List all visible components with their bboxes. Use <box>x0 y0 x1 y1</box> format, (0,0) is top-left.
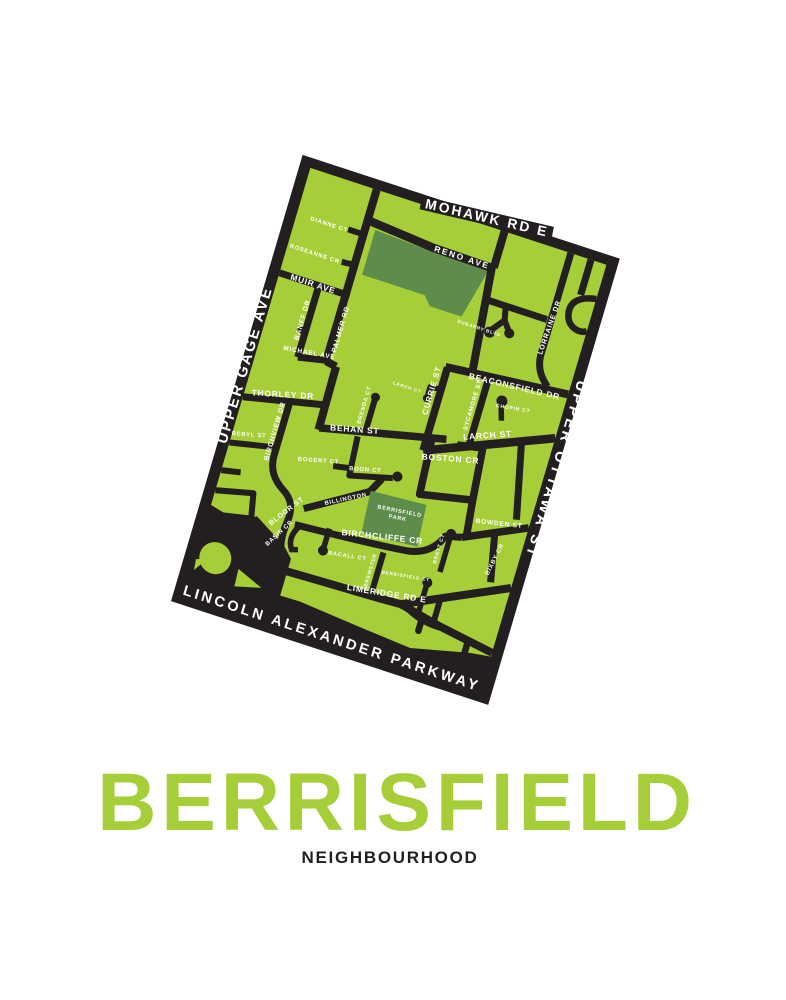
svg-text:BERRISFIELD: BERRISFIELD <box>97 757 697 848</box>
svg-text:NEIGHBOURHOOD: NEIGHBOURHOOD <box>302 848 479 867</box>
